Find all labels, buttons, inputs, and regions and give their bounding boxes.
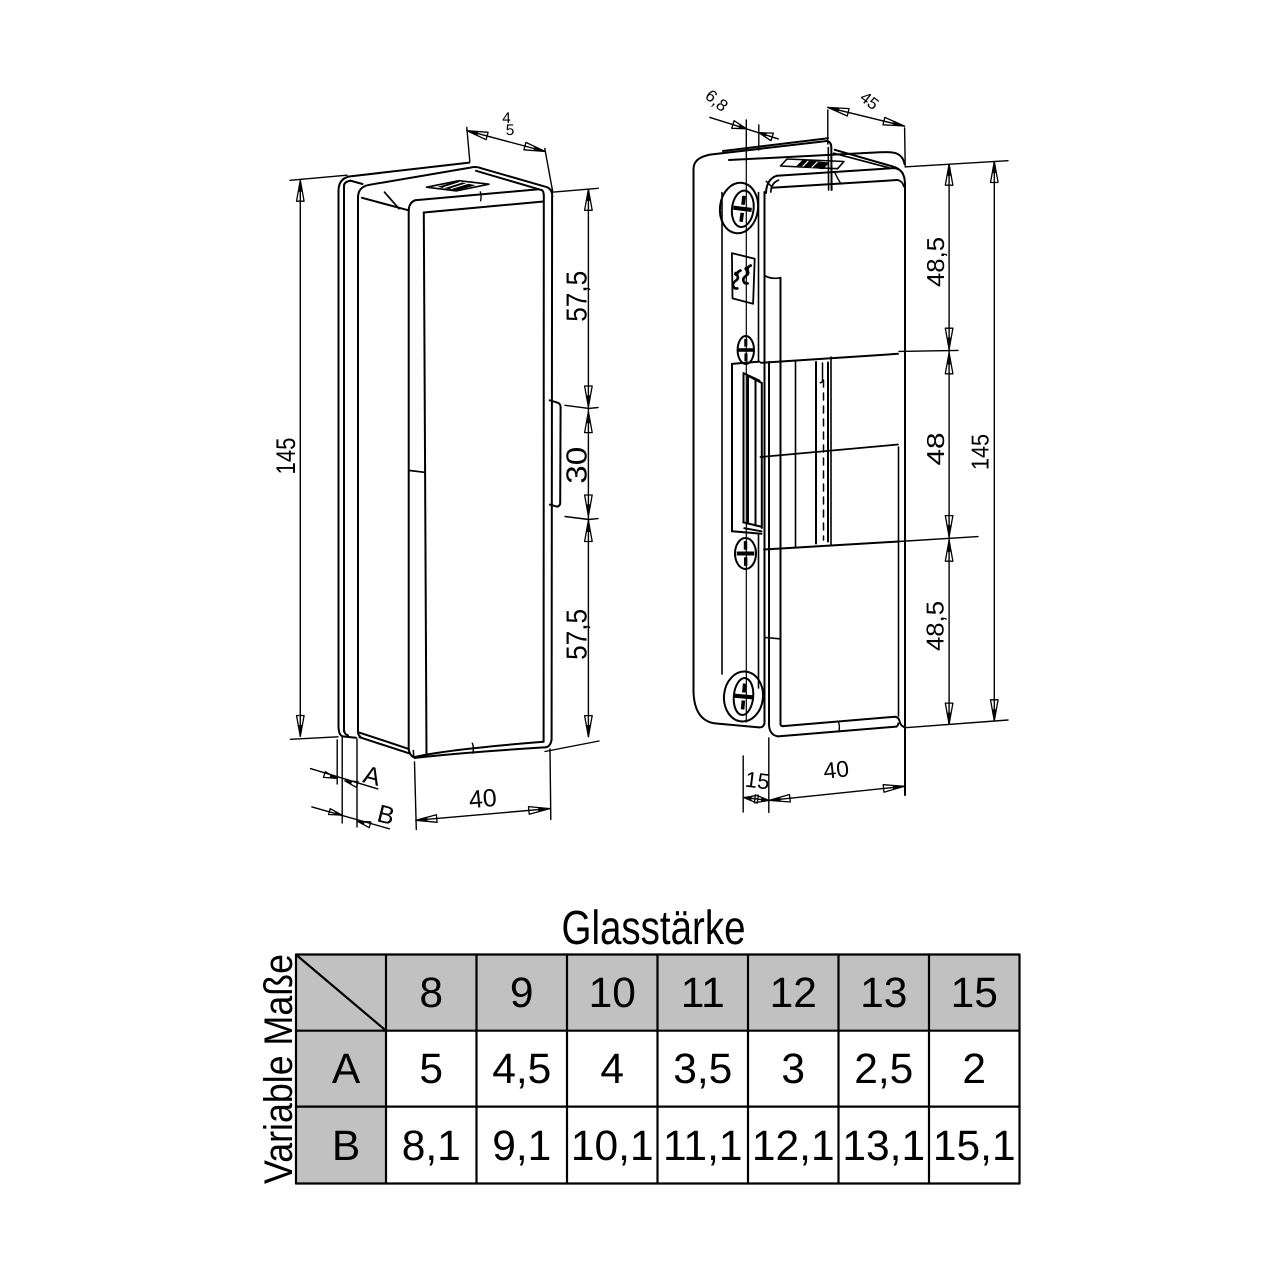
svg-text:2: 2 (962, 1046, 986, 1093)
svg-text:48: 48 (923, 433, 950, 466)
svg-text:13: 13 (860, 970, 907, 1017)
svg-text:145: 145 (271, 438, 301, 475)
svg-text:5: 5 (506, 122, 515, 139)
svg-text:57,5: 57,5 (561, 609, 593, 660)
svg-text:4,5: 4,5 (492, 1046, 551, 1093)
svg-text:5: 5 (419, 1046, 443, 1093)
svg-text:3: 3 (781, 1046, 805, 1093)
svg-text:10,1: 10,1 (571, 1123, 654, 1170)
svg-text:4: 4 (600, 1046, 624, 1093)
svg-text:48,5: 48,5 (923, 601, 950, 651)
svg-text:Glasstärke: Glasstärke (562, 902, 746, 955)
svg-text:3,5: 3,5 (673, 1046, 732, 1093)
svg-text:57,5: 57,5 (562, 271, 594, 322)
svg-text:12: 12 (770, 970, 817, 1017)
svg-text:8,1: 8,1 (402, 1123, 461, 1170)
svg-text:13,1: 13,1 (842, 1123, 925, 1170)
svg-text:40: 40 (468, 784, 498, 814)
svg-text:48,5: 48,5 (923, 237, 950, 287)
svg-text:A: A (332, 1046, 361, 1093)
svg-text:15: 15 (951, 970, 998, 1017)
svg-text:15,1: 15,1 (933, 1123, 1016, 1170)
svg-text:B: B (332, 1123, 360, 1170)
svg-text:Variable Maße: Variable Maße (257, 954, 301, 1184)
svg-text:12,1: 12,1 (752, 1123, 835, 1170)
svg-text:9,1: 9,1 (492, 1123, 551, 1170)
svg-text:11: 11 (681, 970, 725, 1017)
svg-text:15: 15 (744, 767, 771, 795)
svg-text:8: 8 (419, 970, 443, 1017)
svg-text:2,5: 2,5 (854, 1046, 913, 1093)
svg-text:30: 30 (562, 447, 594, 484)
svg-text:40: 40 (822, 755, 850, 784)
svg-text:11,1: 11,1 (663, 1123, 743, 1170)
svg-text:9: 9 (510, 970, 534, 1017)
svg-text:145: 145 (968, 434, 995, 470)
svg-text:10: 10 (589, 970, 636, 1017)
